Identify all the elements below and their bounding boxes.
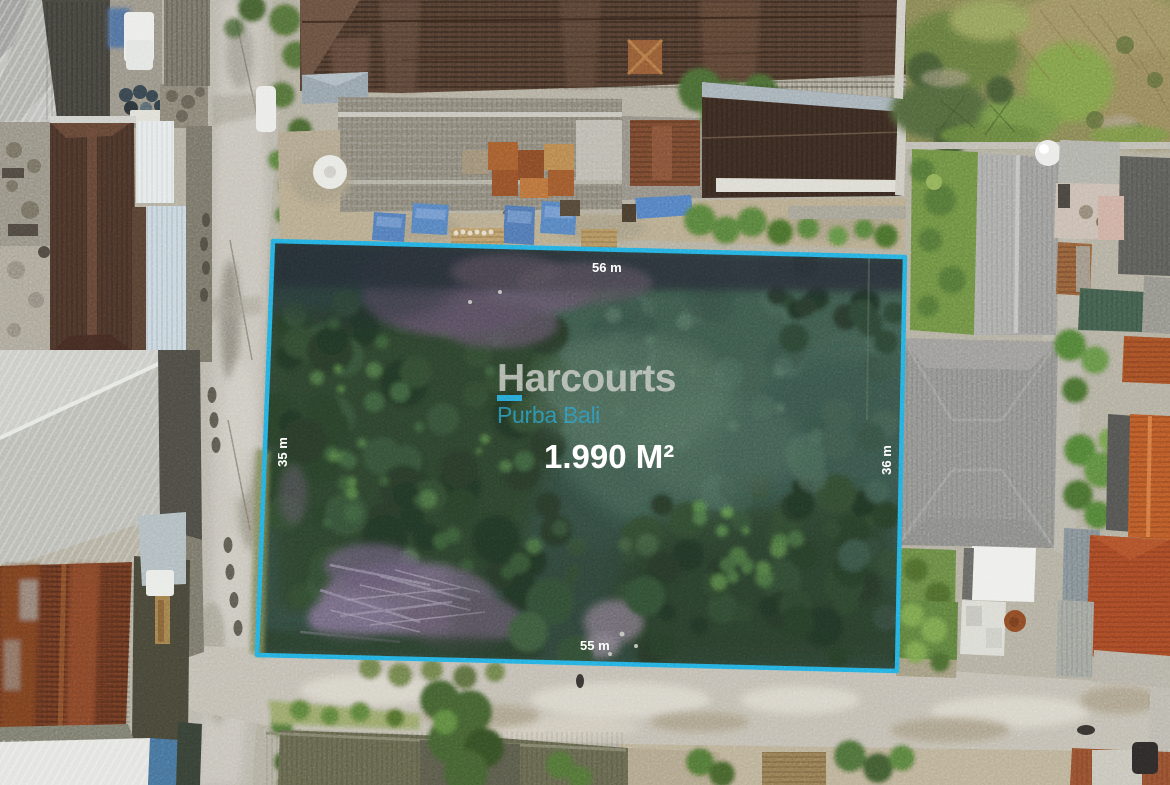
svg-text:1.990 M²: 1.990 M² [544,438,674,475]
svg-text:55 m: 55 m [580,638,610,653]
svg-text:Purba Bali: Purba Bali [497,402,600,428]
svg-text:35 m: 35 m [275,437,290,467]
svg-text:36 m: 36 m [879,445,894,475]
svg-text:56 m: 56 m [592,260,622,275]
svg-text:Harcourts: Harcourts [497,357,676,400]
